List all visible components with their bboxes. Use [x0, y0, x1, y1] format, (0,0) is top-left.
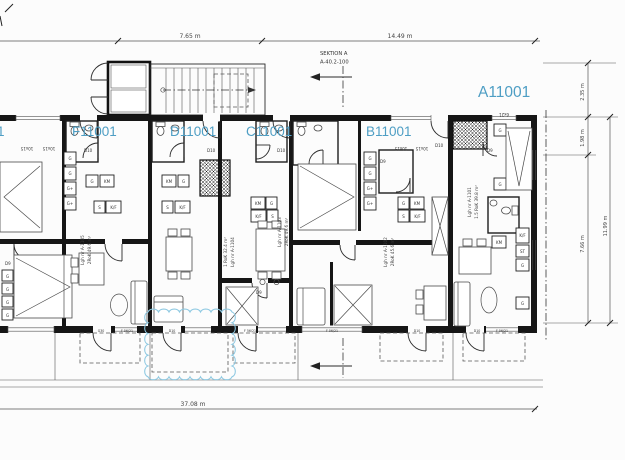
unit-info-line1: Lgh nr A-1101 [467, 187, 472, 217]
floorplan-canvas: 7.65 m 14.49 m 37.08 m 2.35 m 1.98 m 7.6… [0, 0, 625, 460]
wardrobe-label: G+ [367, 186, 373, 191]
entry-door-label: D10 [84, 148, 93, 153]
entry-door-label: D10 [435, 143, 444, 148]
appliance-label: K/F [255, 214, 262, 219]
appliance-label: KM [104, 179, 111, 184]
wardrobe-label: G [521, 301, 524, 306]
appliance-label: S [98, 205, 101, 210]
dim-top-left: 7.65 m [179, 33, 200, 40]
appliance-label: S [402, 214, 405, 219]
section-marker-top: SEKTION A A-40.2-100 [310, 51, 352, 108]
window-size-label: 10x15 [42, 146, 55, 151]
appliance-label: G [182, 179, 185, 184]
window-size-label: 10x15 [415, 146, 428, 151]
window-size-label: 6x21 [499, 112, 509, 117]
unit-info-line2: 2RoK 45.6 m² [390, 237, 395, 266]
apartment-label-a: A11001 [478, 84, 530, 101]
unit-info-line1: Lgh nr A-1105 [80, 235, 85, 265]
entry-door-label: D10 [207, 148, 216, 153]
wardrobe-label: G [6, 313, 9, 318]
wardrobe-label: G [521, 263, 524, 268]
shaft-hatched-a [453, 121, 487, 149]
unit-info-line1: Lgh nr A-1103 [277, 217, 282, 247]
apartment-label-d: D11001 [170, 124, 216, 139]
appliance-label: K/F [414, 214, 421, 219]
appliance-label: K/F [519, 233, 526, 238]
appliance-label: G [90, 179, 93, 184]
dim-right-3: 7.66 m [580, 235, 586, 253]
wardrobe-label: G [368, 156, 371, 161]
facade-spec-label: F 56/21 [244, 329, 256, 333]
dim-bottom: 37.08 m [181, 401, 206, 408]
unit-info-line1: Lgh nr A-1102 [383, 237, 388, 267]
unit-info-line2: Lgh nr A-1104 [230, 237, 235, 267]
unit-info-line2: 2RoK 49.6 m² [87, 235, 92, 264]
appliance-label: ST [520, 249, 526, 254]
dim-right-2: 1.98 m [580, 129, 586, 147]
dim-right-1: 2.35 m [580, 83, 586, 101]
unit-info-line2: 2RoK 49.6 m² [284, 217, 289, 246]
dim-right-total: 11.99 m [603, 215, 609, 236]
wardrobe-label: G [6, 287, 9, 292]
window-size-label: 10x15 [394, 146, 407, 151]
appliance-label: K/F [110, 205, 117, 210]
apartment-label-partial: 1 [0, 124, 5, 139]
unit-info-line2: 1.5 RoK 39.8 m² [474, 185, 479, 219]
appliance-label: G [402, 201, 405, 206]
wardrobe-label: G+ [67, 186, 73, 191]
window-size-label: 10x15 [20, 146, 33, 151]
wardrobe-label: G [498, 128, 501, 133]
appliance-label: KM [496, 240, 503, 245]
facade-spec-label: D10 [414, 329, 421, 333]
appliance-label: S [166, 205, 169, 210]
facade-spec-label: F 56/21 [326, 329, 338, 333]
floorplan-svg: 7.65 m 14.49 m 37.08 m 2.35 m 1.98 m 7.6… [0, 0, 625, 460]
wardrobe-label: G [6, 300, 9, 305]
wardrobe-label: G [6, 274, 9, 279]
wardrobe-label: G+ [67, 201, 73, 206]
shaft-hatched [200, 160, 230, 196]
wardrobe-label: G [498, 182, 501, 187]
interior-door-label: D9 [487, 148, 493, 153]
apartment-label-f: F11001 [72, 124, 117, 139]
facade-spec-label: F 56/21 [121, 329, 133, 333]
facade-spec-label: D10 [474, 329, 481, 333]
unit-info-line1: 1 RoK 32.4 m² [223, 237, 228, 267]
entry-door-label: D10 [277, 148, 286, 153]
section-marker-bottom [310, 338, 352, 378]
appliance-label: S [271, 214, 274, 219]
section-arrow-top [310, 73, 320, 81]
wardrobe-label: G [368, 171, 371, 176]
stair-core [91, 62, 265, 115]
facade-spec-label: F 56/21 [496, 329, 508, 333]
appliance-label: K/F [179, 205, 186, 210]
interior-door-label: D9 [380, 159, 386, 164]
section-arrow-bottom [310, 362, 320, 370]
stair-direction-arrow [248, 87, 256, 93]
unit-f: G G G+ G+ G KM S K/F Lgh nr A-1105 2RoK … [64, 121, 147, 324]
wardrobe-label: G+ [367, 201, 373, 206]
wardrobe-label: G [68, 156, 71, 161]
section-label-line2: A-40.2-100 [320, 60, 349, 66]
wardrobe-label: G [68, 171, 71, 176]
interior-door-label: D9 [5, 261, 11, 266]
appliance-label: KM [166, 179, 173, 184]
appliance-label: KM [414, 201, 421, 206]
facade-spec-label: D10 [169, 329, 176, 333]
apartment-label-c: C11001 [246, 124, 292, 139]
interior-door-label: D9 [256, 290, 262, 295]
appliance-label: KM [255, 201, 262, 206]
dim-top-right: 14.49 m [388, 33, 413, 40]
apartment-label-b: B11001 [366, 124, 412, 139]
appliance-label: G [270, 201, 273, 206]
section-label-line1: SEKTION A [320, 51, 348, 57]
unit-d: KM G S K/F 1 RoK 32.4 m² Lgh nr A-1104 [152, 121, 235, 322]
unit-a: G G KM K/F ST G G Lgh nr A-1101 1.5 RoK … [454, 124, 532, 326]
facade-spec-label: G30 [98, 329, 105, 333]
